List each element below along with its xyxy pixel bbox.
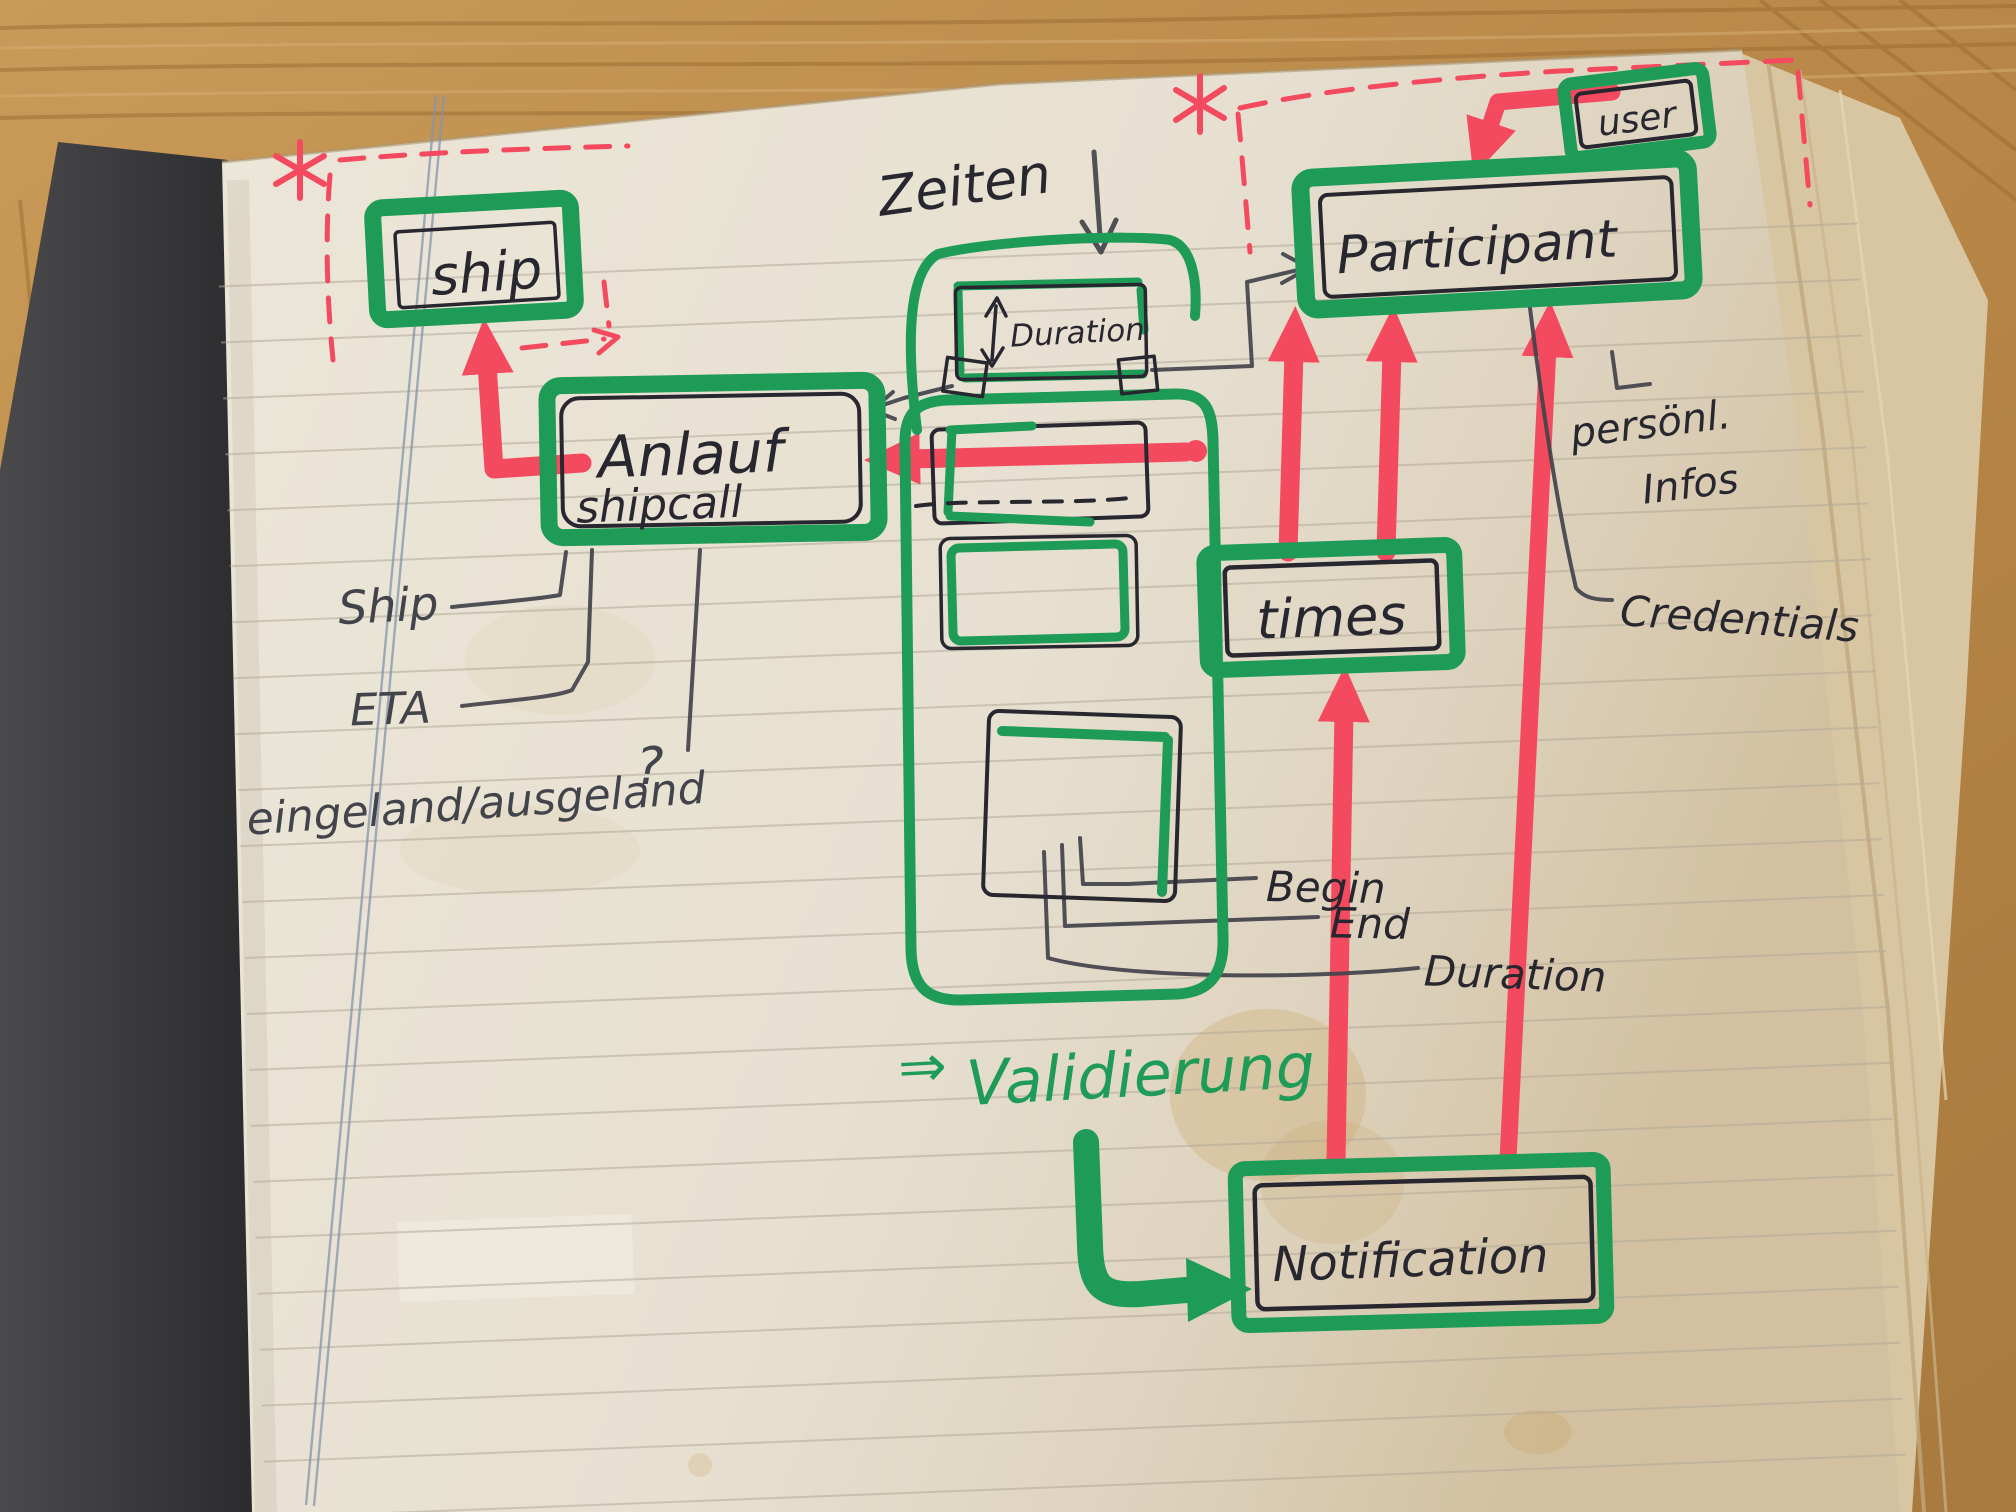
- validierung-arrow-label: ⇒: [896, 1031, 948, 1101]
- arrow-times-to-participant-1: [1288, 352, 1294, 552]
- eta-label: ETA: [349, 683, 431, 737]
- node-duration-label: Duration: [1009, 312, 1145, 355]
- node-notification-label: Notification: [1271, 1228, 1549, 1294]
- end-label: End: [1330, 898, 1411, 948]
- duration-attr-label: Duration: [1423, 946, 1607, 1001]
- node-shipcall-label: shipcall: [575, 477, 744, 534]
- question-mark-label: ?: [636, 737, 664, 797]
- arrow-times-to-participant-2: [1386, 352, 1392, 552]
- node-ship-label: ship: [429, 237, 545, 308]
- notebook-cover: [0, 142, 258, 1512]
- node-times-label: times: [1255, 583, 1407, 651]
- notebook-photo: ship Anlauf shipcall Participant user ti…: [0, 0, 2016, 1512]
- red-line-dot: [1185, 440, 1207, 462]
- ship-attr-label: Ship: [337, 576, 440, 635]
